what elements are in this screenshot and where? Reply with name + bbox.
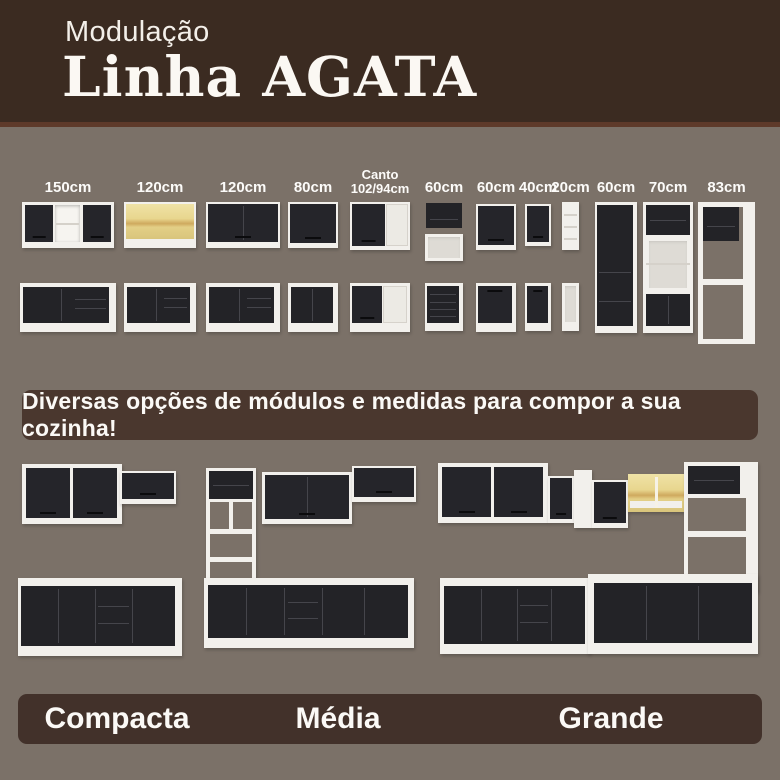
- divider-panel: [655, 477, 658, 508]
- base-cabinet-graphic: [288, 283, 338, 332]
- door-panel: [265, 475, 349, 519]
- cabinet-front: [427, 286, 459, 323]
- cabinet-front: [208, 585, 408, 638]
- wood-front: [126, 204, 194, 239]
- door-panel: [442, 467, 491, 517]
- compact-wall-cabinet-graphic: [426, 203, 462, 228]
- drawer-line: [247, 307, 272, 308]
- drawer-line: [430, 316, 457, 317]
- door-seam: [481, 589, 482, 641]
- door-panel: [83, 205, 111, 242]
- door-panel: [352, 204, 385, 246]
- door-seam: [551, 589, 552, 641]
- door-seam: [61, 289, 62, 321]
- door-seam: [284, 588, 285, 636]
- cabinet-front: [21, 586, 175, 646]
- door-panel: [478, 206, 514, 245]
- drawer-line: [164, 307, 188, 308]
- module-size-label-line2: 102/94cm: [351, 182, 410, 196]
- module-column-20cm: 20cm: [562, 160, 579, 340]
- drawer-line: [430, 302, 457, 303]
- open-shelf-tower-graphic: [562, 202, 579, 250]
- module-column-83cm-frame: 83cm: [698, 160, 755, 340]
- drawer-line: [288, 618, 318, 619]
- door-panel: [290, 204, 336, 243]
- wall-cabinet-graphic: [288, 202, 338, 248]
- white-corner-door: [383, 286, 407, 323]
- door-seam: [322, 588, 323, 636]
- drawer-line: [650, 220, 687, 221]
- door-seam: [599, 301, 631, 302]
- base-cabinets-corner: [588, 574, 758, 654]
- door-panel: [122, 473, 174, 499]
- door-panel: [25, 205, 53, 242]
- module-column-120cm: 120cm: [206, 160, 280, 340]
- wood-cabinet-graphic: [124, 202, 196, 248]
- wall-cabinet-graphic: [476, 204, 516, 250]
- door-panel: [352, 286, 382, 323]
- base-cabinet-graphic: [525, 283, 551, 331]
- door-seam: [246, 588, 247, 636]
- base-cabinets: [204, 578, 414, 648]
- drawer-line: [520, 622, 548, 623]
- door-panel: [550, 478, 572, 519]
- module-column-60cm: 60cm: [476, 160, 516, 340]
- door-panel: [494, 467, 543, 517]
- door-seam: [698, 586, 699, 640]
- shelf-line: [564, 214, 577, 216]
- open-niche-graphic: [425, 234, 463, 261]
- open-shelf: [210, 502, 252, 580]
- drawer-line: [430, 219, 459, 220]
- door-seam: [312, 289, 313, 321]
- cabinet-front: [688, 466, 740, 494]
- open-shelf: [55, 205, 80, 242]
- door-seam: [364, 588, 365, 636]
- appliance-frame-graphic: [698, 202, 755, 344]
- corner-panel: [574, 470, 592, 528]
- wall-cabinet-graphic: [525, 204, 551, 246]
- drawer-line: [520, 605, 548, 606]
- cabinet-front: [291, 287, 333, 323]
- cabinet-front: [703, 207, 739, 241]
- shelf-line: [688, 531, 746, 537]
- cabinet-front: [209, 471, 253, 499]
- legend-bar: Compacta Média Grande: [18, 694, 762, 744]
- wall-cabinet-graphic: [22, 202, 114, 248]
- open-shelf: [646, 238, 690, 291]
- drawer-line: [694, 480, 734, 481]
- wall-cabinets: [22, 464, 122, 524]
- cabinet-front: [646, 205, 690, 235]
- shelf-line: [210, 529, 252, 534]
- banner-text: Diversas opções de módulos e medidas par…: [22, 388, 758, 442]
- door-seam: [517, 589, 518, 641]
- side-panel: [743, 207, 750, 339]
- drawer-line: [164, 298, 188, 299]
- wall-cabinet-graphic: [206, 202, 280, 248]
- header-accent-line: [0, 122, 780, 127]
- door-seam: [239, 289, 240, 321]
- shelf-line: [646, 263, 690, 265]
- wall-cabinet: [592, 480, 628, 528]
- drawer-line: [213, 485, 248, 486]
- door-seam: [646, 586, 647, 640]
- module-column-80cm: 80cm: [288, 160, 338, 340]
- door-seam: [58, 589, 59, 643]
- tall-pantry-graphic: [595, 202, 637, 333]
- cabinet-front: [444, 586, 585, 644]
- shelf-line: [564, 226, 577, 228]
- tall-tower: [684, 462, 758, 592]
- door-panel: [478, 286, 512, 323]
- niche-interior: [562, 283, 579, 325]
- base-cabinet-graphic: [124, 283, 196, 332]
- door-panel: [527, 286, 548, 323]
- cabinet-bottom-shelf: [124, 240, 196, 248]
- wall-cabinet-short: [548, 476, 574, 523]
- drawer-line: [707, 226, 736, 227]
- open-shelf: [688, 498, 746, 584]
- door-panel: [527, 206, 549, 242]
- shelf-line: [56, 223, 79, 225]
- legend-grande: Grande: [558, 702, 663, 736]
- base-cabinet-graphic: [206, 283, 280, 332]
- cabinet-front: [646, 294, 690, 326]
- base-cabinet-graphic: [20, 283, 116, 332]
- wall-cabinets: [438, 463, 548, 523]
- cabinet-front: [127, 287, 190, 323]
- wall-cabinet-short: [120, 471, 176, 504]
- module-size-chart: 150cm 120cm: [0, 160, 780, 345]
- tall-tower-graphic: [643, 202, 693, 333]
- niche-interior: [425, 234, 463, 261]
- module-column-canto: Canto 102/94cm: [350, 160, 410, 340]
- module-size-label-line1: Canto: [362, 168, 399, 182]
- drawer-line: [247, 298, 272, 299]
- door-seam: [668, 296, 669, 325]
- wall-cabinet-short: [352, 466, 416, 502]
- drawer-line: [430, 309, 457, 310]
- corner-wall-cabinet-graphic: [350, 202, 410, 250]
- door-seam: [95, 589, 96, 643]
- divider-panel: [229, 502, 233, 529]
- shelf-line: [210, 557, 252, 562]
- door-seam: [599, 272, 631, 273]
- base-cabinets: [440, 578, 590, 654]
- shelf-line: [703, 279, 750, 285]
- module-size-label: 83cm: [684, 160, 769, 196]
- drawer-line: [75, 299, 106, 300]
- drawer-line: [288, 602, 318, 603]
- cabinet-front: [597, 205, 633, 326]
- drawer-line: [75, 308, 106, 309]
- header: Modulação Linha AGATA: [0, 0, 780, 122]
- door-panel: [354, 468, 414, 497]
- kitchen-layouts: [0, 450, 780, 690]
- module-column-120cm-wood: 120cm: [124, 160, 196, 340]
- drawer-line: [430, 294, 457, 295]
- tall-tower: [206, 468, 256, 586]
- module-column-150cm: 150cm: [20, 160, 116, 340]
- door-seam: [307, 477, 308, 517]
- door-seam: [132, 589, 133, 643]
- wall-cabinets: [262, 472, 352, 524]
- cabinet-front: [594, 583, 752, 643]
- shelf-line: [564, 238, 577, 240]
- door-seam: [243, 206, 244, 240]
- legend-media: Média: [295, 702, 380, 736]
- wood-open-shelf: [628, 474, 684, 512]
- drawer-line: [98, 623, 129, 624]
- white-corner-door: [386, 204, 408, 246]
- banner: Diversas opções de módulos e medidas par…: [22, 390, 758, 440]
- cabinet-front: [23, 287, 109, 323]
- base-cabinets: [18, 578, 182, 656]
- module-column-60cm-niche: 60cm: [425, 160, 463, 340]
- drawer-base-graphic: [425, 283, 463, 331]
- drawer-line: [98, 606, 129, 607]
- door-panel: [594, 482, 626, 523]
- door-panel: [208, 204, 278, 242]
- base-cabinet-graphic: [476, 283, 516, 332]
- cabinet-front: [209, 287, 274, 323]
- legend-compacta: Compacta: [44, 702, 189, 736]
- door-panel: [26, 468, 70, 518]
- page-title: Linha AGATA: [62, 44, 477, 109]
- door-seam: [156, 289, 157, 321]
- door-panel: [73, 468, 117, 518]
- open-base-niche-graphic: [562, 283, 579, 331]
- corner-base-cabinet-graphic: [350, 283, 410, 332]
